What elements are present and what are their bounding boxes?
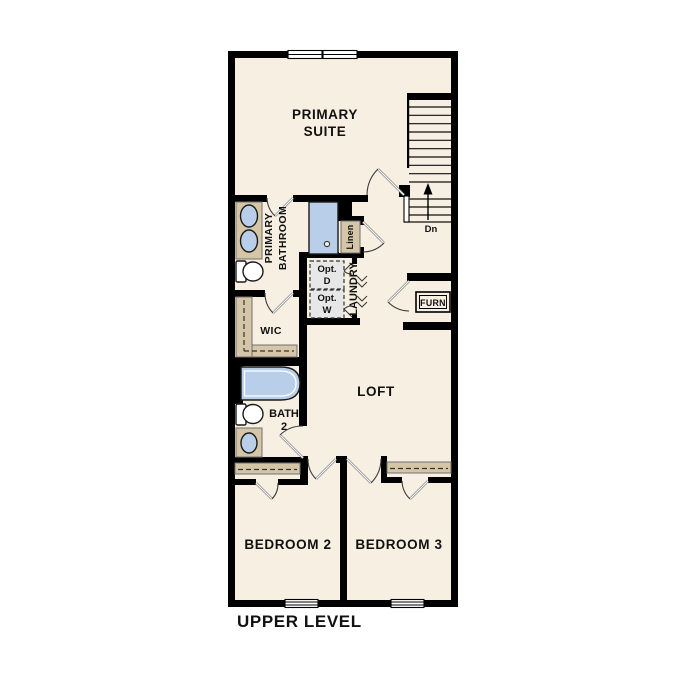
- optional-dryer-label-1: Opt.: [318, 264, 337, 275]
- stairs-down-label: Dn: [425, 224, 438, 235]
- primary-bathroom-label-2: BATHROOM: [277, 206, 289, 270]
- primary-sink-2: [241, 230, 258, 252]
- shower-drain: [324, 241, 329, 246]
- wic-shelf-bottom: [252, 345, 297, 357]
- shower: [309, 202, 338, 254]
- bathtub: [241, 367, 300, 400]
- optional-dryer-label-2: D: [324, 276, 331, 287]
- bedroom3-closet-shelf: [387, 462, 451, 473]
- optional-washer-label-1: Opt.: [318, 293, 337, 304]
- linen-label: Linen: [345, 225, 355, 250]
- primary-sink-1: [241, 205, 258, 227]
- bath2-toilet-bowl: [243, 405, 263, 424]
- window-bedroom2: [285, 600, 318, 608]
- optional-washer-label-2: W: [323, 305, 332, 316]
- bedroom3-label: BEDROOM 3: [355, 537, 442, 552]
- primary-bathroom-label-1: PRIMARY: [263, 213, 275, 264]
- window-bedroom3: [391, 600, 424, 608]
- bedroom2-label: BEDROOM 2: [244, 537, 331, 552]
- floor-plan-page: Dn: [0, 0, 687, 687]
- primary-toilet-bowl: [243, 262, 263, 281]
- bedroom2-closet-shelf: [235, 463, 300, 474]
- furnace-label: FURN: [420, 298, 446, 308]
- stair-rail: [404, 196, 409, 222]
- wic-label: WIC: [260, 325, 282, 337]
- primary-suite-label-1: PRIMARY: [292, 107, 358, 122]
- bath2-label-1: BATH: [269, 408, 299, 420]
- level-title: UPPER LEVEL: [237, 612, 362, 631]
- primary-suite-label-2: SUITE: [304, 124, 347, 139]
- laundry-label: LAUNDRY: [348, 262, 360, 316]
- bath2-sink: [241, 433, 257, 453]
- bath2-label-2: 2: [281, 421, 287, 433]
- loft-label: LOFT: [357, 384, 395, 399]
- furnace-unit: FURN: [416, 292, 450, 312]
- floor-plan-svg: Dn: [0, 0, 687, 687]
